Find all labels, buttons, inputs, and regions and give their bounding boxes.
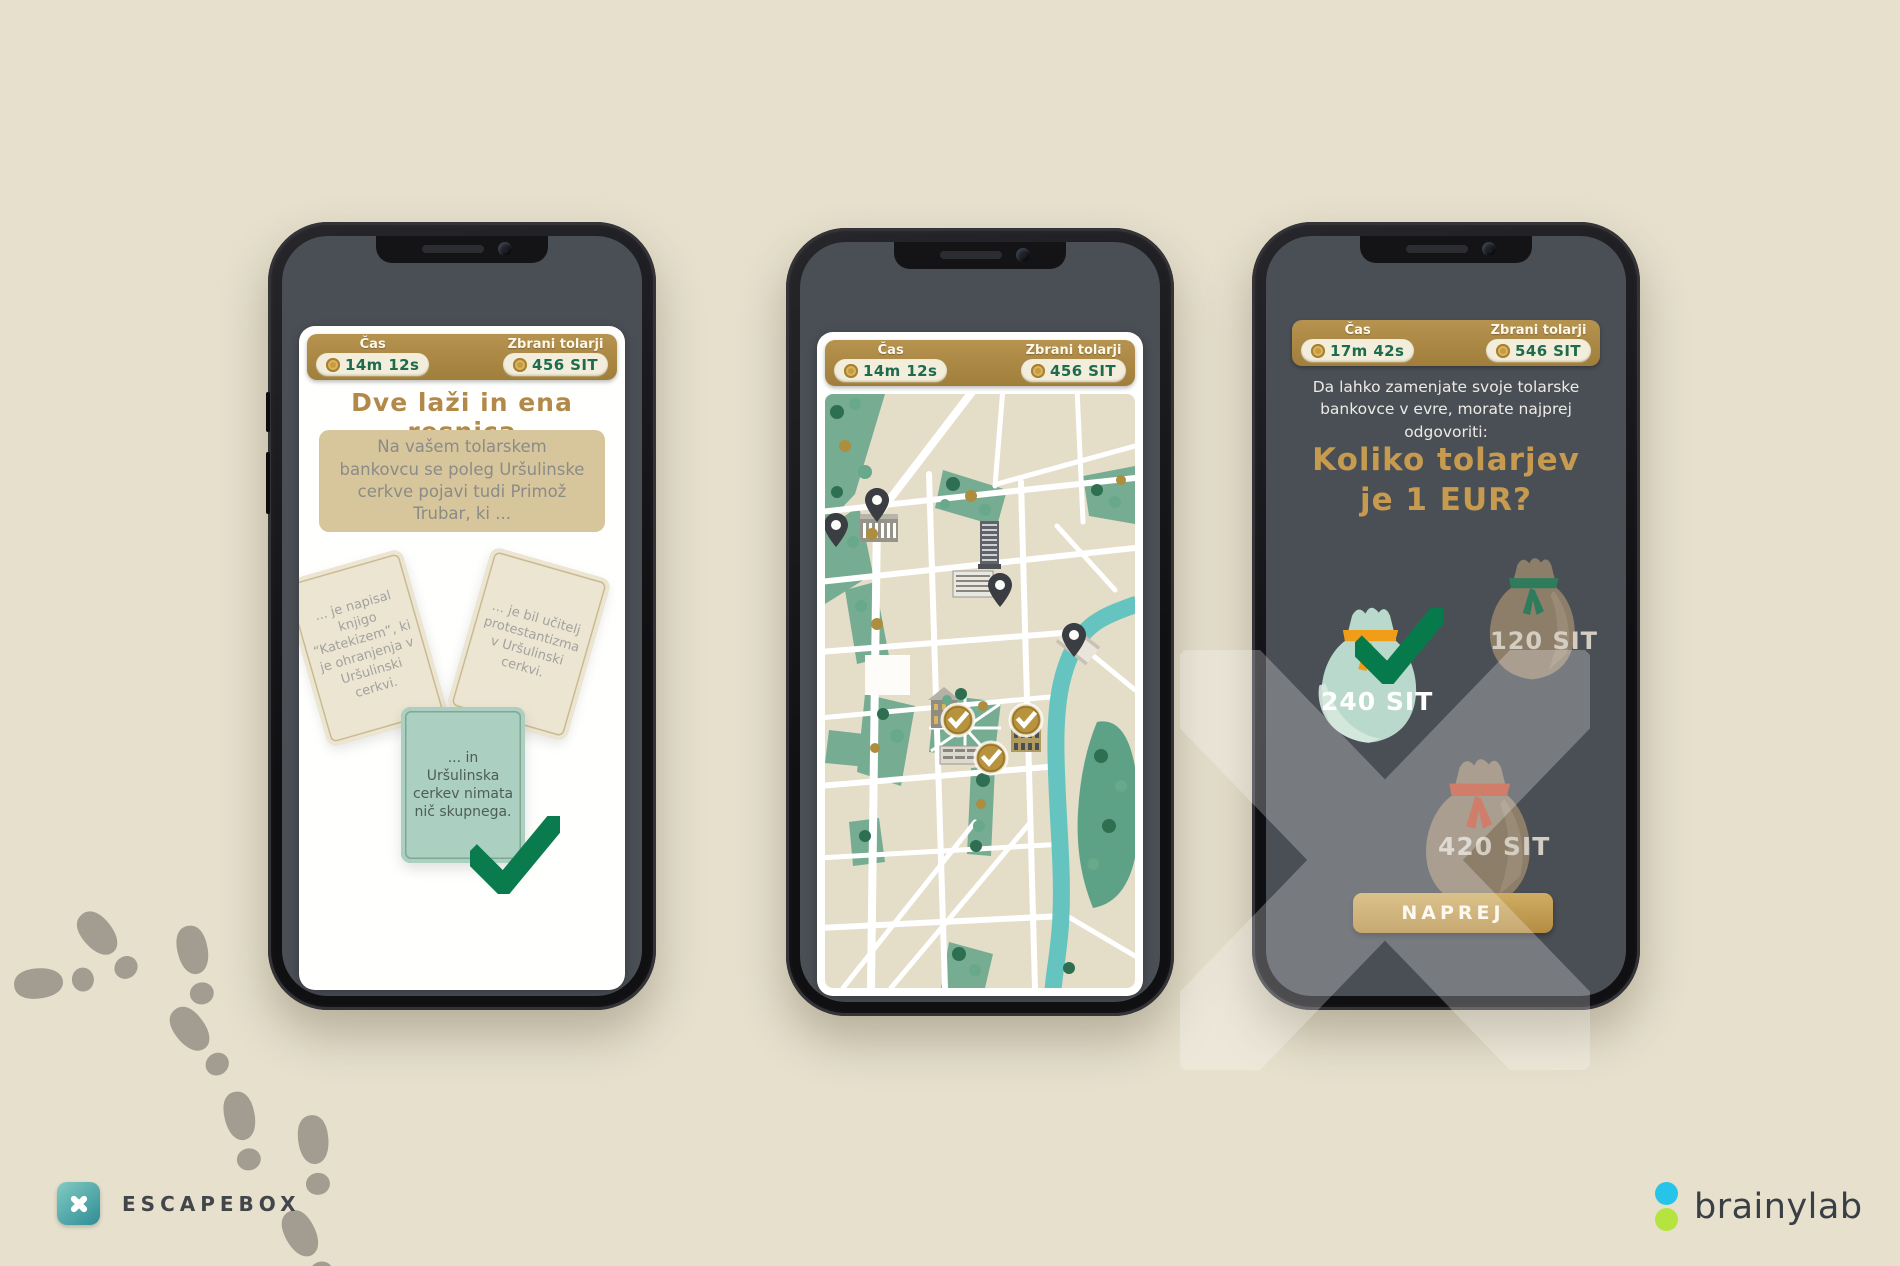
checkpoint-badge[interactable] <box>975 742 1007 774</box>
footprint-icon <box>165 920 227 1012</box>
bag-amount-label: 420 SIT <box>1438 832 1550 861</box>
checkpoint-badge[interactable] <box>942 704 974 736</box>
map-screen: Čas 14m 12s Zbrani tolarji 456 SIT <box>817 332 1143 996</box>
timer-value: 17m 42s <box>1330 342 1404 360</box>
answer-card-text: ... in Uršulinska cerkev nimata nič skup… <box>410 749 516 822</box>
answer-card-text: ... je bil učitelj protestantizma v Uršu… <box>469 597 590 691</box>
game-hud: Čas 14m 12s Zbrani tolarji 456 SIT <box>307 334 617 380</box>
title-line-2: je 1 EUR? <box>1266 480 1626 520</box>
phone-screen: Čas 14m 12s Zbrani tolarji 456 SIT <box>800 242 1160 1002</box>
hotel-building <box>953 571 993 597</box>
poster-background: Čas 14m 12s Zbrani tolarji 456 SIT <box>0 0 1900 1266</box>
answer-bag-420[interactable]: 420 SIT <box>1410 740 1545 915</box>
timer-pill: 14m 12s <box>834 359 947 382</box>
city-map[interactable] <box>825 394 1135 988</box>
answer-card-text: ... je napisal knjigo “Katekizem”, ki je… <box>300 585 430 712</box>
camera-icon <box>1482 242 1496 256</box>
lime-dot-icon <box>1655 1208 1678 1231</box>
bag-amount-label: 240 SIT <box>1321 687 1433 716</box>
building-block <box>865 655 910 695</box>
camera-icon <box>498 242 512 256</box>
clock-coin-icon <box>326 358 340 372</box>
phone-screen: Čas 14m 12s Zbrani tolarji 456 SIT <box>282 236 642 996</box>
escapebox-logo: ESCAPEBOX <box>57 1182 301 1225</box>
phone-screen: Čas 17m 42s Zbrani tolarji 546 SIT Da la… <box>1266 236 1626 996</box>
timer-value: 14m 12s <box>345 356 419 374</box>
volume-button <box>266 452 270 514</box>
answer-bag-120[interactable]: 120 SIT <box>1472 545 1592 683</box>
phone-notch <box>1360 236 1532 263</box>
brainylab-wordmark: brainylab <box>1694 1187 1863 1227</box>
phone-notch <box>894 242 1066 269</box>
game-hud: Čas 17m 42s Zbrani tolarji 546 SIT <box>1292 320 1600 366</box>
volume-button <box>266 392 270 432</box>
clock-coin-icon <box>1311 344 1325 358</box>
game-hud: Čas 14m 12s Zbrani tolarji 456 SIT <box>825 340 1135 386</box>
time-label: Čas <box>1345 324 1371 338</box>
coins-label: Zbrani tolarji <box>1491 324 1587 338</box>
phone-mockup-map: Čas 14m 12s Zbrani tolarji 456 SIT <box>786 228 1174 1016</box>
question-box: Na vašem tolarskem bankovcu se poleg Urš… <box>319 430 605 532</box>
cyan-dot-icon <box>1655 1182 1678 1205</box>
footprint-icon <box>156 995 244 1090</box>
selected-checkmark-icon <box>1355 608 1443 684</box>
next-button[interactable]: NAPREJ <box>1353 893 1553 933</box>
timer-pill: 17m 42s <box>1301 339 1414 362</box>
camera-icon <box>1016 248 1030 262</box>
escapebox-x-icon <box>57 1182 100 1225</box>
speaker-icon <box>940 251 1002 259</box>
correct-checkmark-icon <box>470 816 560 894</box>
coins-label: Zbrani tolarji <box>1026 344 1122 358</box>
coins-pill: 546 SIT <box>1486 339 1591 362</box>
phone-mockup-currency: Čas 17m 42s Zbrani tolarji 546 SIT Da la… <box>1252 222 1640 1010</box>
skyscraper-building <box>978 521 1001 569</box>
bag-amount-label: 120 SIT <box>1490 627 1598 655</box>
timer-pill: 14m 12s <box>316 353 429 376</box>
speaker-icon <box>1406 245 1468 253</box>
coins-value: 546 SIT <box>1515 342 1581 360</box>
money-bag-icon <box>1472 545 1592 683</box>
coins-pill: 456 SIT <box>503 353 608 376</box>
coin-icon <box>1031 364 1045 378</box>
time-label: Čas <box>878 344 904 358</box>
coins-pill: 456 SIT <box>1021 359 1126 382</box>
time-label: Čas <box>360 338 386 352</box>
phone-notch <box>376 236 548 263</box>
question-intro: Da lahko zamenjate svoje tolarske bankov… <box>1286 376 1606 443</box>
coin-icon <box>513 358 527 372</box>
title-line-1: Koliko tolarjev <box>1266 440 1626 480</box>
timer-value: 14m 12s <box>863 362 937 380</box>
coins-value: 456 SIT <box>1050 362 1116 380</box>
escapebox-wordmark: ESCAPEBOX <box>122 1192 301 1216</box>
checkpoint-badge[interactable] <box>1010 704 1042 736</box>
speaker-icon <box>422 245 484 253</box>
brainylab-logo: brainylab <box>1655 1182 1863 1231</box>
clock-coin-icon <box>844 364 858 378</box>
coin-icon <box>1496 344 1510 358</box>
phone-mockup-quiz: Čas 14m 12s Zbrani tolarji 456 SIT <box>268 222 656 1010</box>
footprint-icon <box>11 955 99 1008</box>
coins-value: 456 SIT <box>532 356 598 374</box>
footprint-icon <box>212 1086 274 1178</box>
coins-label: Zbrani tolarji <box>508 338 604 352</box>
money-bag-icon <box>1410 740 1545 915</box>
quiz-screen: Čas 14m 12s Zbrani tolarji 456 SIT <box>299 326 625 990</box>
currency-question-title: Koliko tolarjev je 1 EUR? <box>1266 440 1626 521</box>
brainylab-dots-icon <box>1655 1182 1678 1231</box>
